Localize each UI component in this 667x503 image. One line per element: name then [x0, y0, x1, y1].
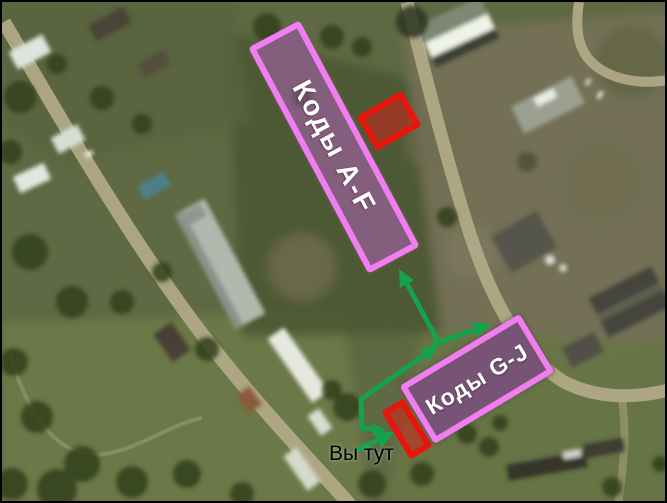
annotated-satellite-map: Коды A-F Коды G-J Вы тут: [0, 0, 667, 503]
you-are-here-label: Вы тут: [329, 442, 394, 466]
satellite-background: [2, 2, 667, 503]
